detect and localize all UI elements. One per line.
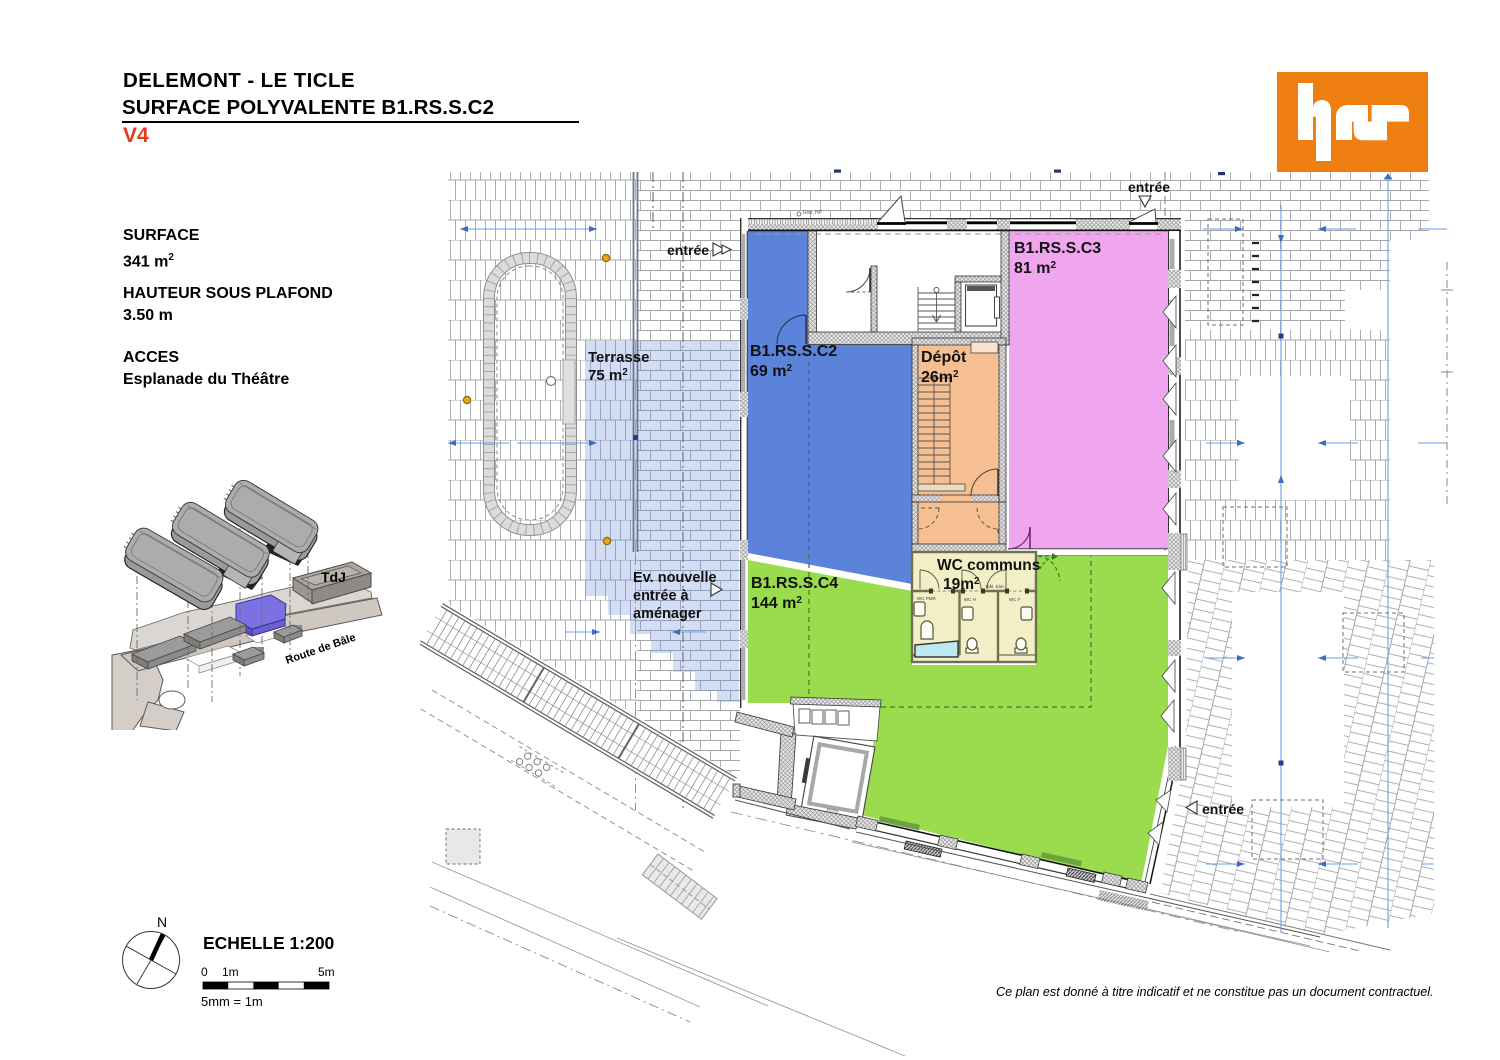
svg-text:TdJ: TdJ (321, 569, 346, 585)
svg-text:entrée: entrée (667, 242, 709, 258)
svg-text:Terrasse: Terrasse (588, 349, 649, 366)
svg-text:WC PMR: WC PMR (917, 596, 936, 601)
svg-text:0: 0 (201, 965, 208, 979)
svg-text:Ev. nouvelle: Ev. nouvelle (633, 570, 717, 586)
svg-text:WC F: WC F (1009, 597, 1021, 602)
svg-text:81 m2: 81 m2 (1014, 260, 1056, 277)
svg-text:aménager: aménager (633, 606, 702, 622)
svg-text:entrée à: entrée à (633, 588, 690, 604)
svg-text:5mm = 1m: 5mm = 1m (201, 994, 263, 1009)
svg-text:Dépôt: Dépôt (921, 349, 967, 366)
svg-text:Tabl. Elec: Tabl. Elec (985, 584, 1005, 589)
svg-text:N: N (157, 914, 167, 930)
svg-text:144 m2: 144 m2 (751, 595, 802, 612)
svg-text:entrée: entrée (1128, 179, 1170, 195)
svg-text:75 m2: 75 m2 (588, 367, 628, 384)
svg-text:WC H: WC H (964, 597, 976, 602)
svg-text:B1.RS.S.C3: B1.RS.S.C3 (1014, 240, 1101, 257)
svg-text:5m: 5m (318, 965, 335, 979)
svg-text:69 m2: 69 m2 (750, 363, 792, 380)
svg-text:entrée: entrée (1202, 801, 1244, 817)
svg-text:1m: 1m (222, 965, 239, 979)
svg-text:B1.RS.S.C4: B1.RS.S.C4 (751, 575, 838, 592)
svg-text:B1.RS.S.C2: B1.RS.S.C2 (750, 343, 837, 360)
svg-text:Rob. HP: Rob. HP (803, 210, 823, 216)
svg-text:WC communs: WC communs (937, 557, 1040, 574)
